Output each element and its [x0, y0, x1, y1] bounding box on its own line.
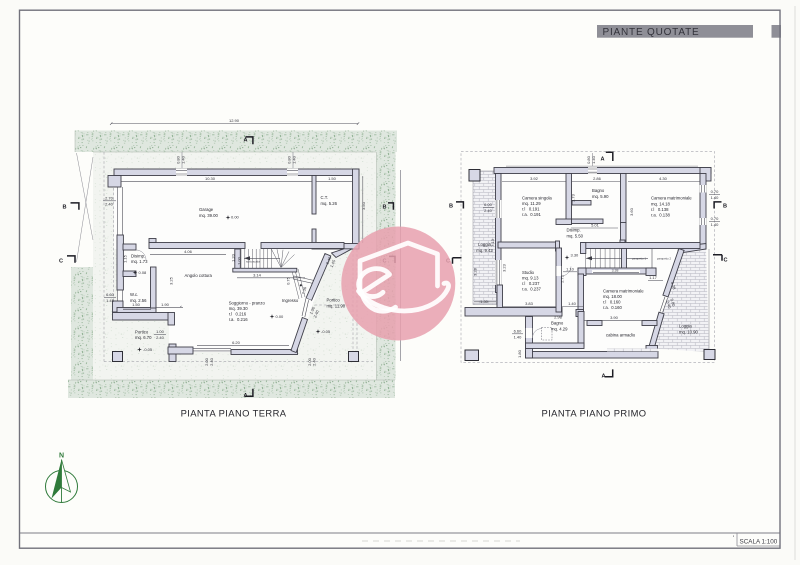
svg-text:1.00: 1.00: [237, 256, 242, 265]
svg-text:mq. 6.70: mq. 6.70: [135, 335, 152, 340]
svg-text:Studio: Studio: [522, 270, 535, 275]
svg-text:1.40: 1.40: [514, 334, 523, 339]
svg-text:2.40: 2.40: [209, 357, 214, 366]
svg-text:mq. 1.73: mq. 1.73: [131, 259, 148, 264]
svg-text:0.70: 0.70: [711, 189, 720, 194]
svg-text:1.90: 1.90: [161, 302, 170, 307]
svg-text:mq. 10.90: mq. 10.90: [679, 330, 699, 335]
svg-text:mq. 39.00: mq. 39.00: [199, 213, 219, 218]
svg-text:mq. 39.30: mq. 39.30: [229, 306, 249, 311]
svg-text:1.17: 1.17: [649, 275, 658, 280]
svg-text:10.30: 10.30: [205, 176, 216, 181]
svg-text:3.25: 3.25: [169, 276, 174, 285]
svg-text:r.a. 0.216: r.a. 0.216: [229, 317, 249, 322]
svg-text:1.40: 1.40: [711, 222, 720, 227]
svg-text:r.a. 0.191: r.a. 0.191: [522, 212, 542, 217]
svg-text:mq. 11.90: mq. 11.90: [327, 304, 346, 309]
svg-text:cabina armadio: cabina armadio: [606, 333, 636, 338]
svg-text:r.a. 0.138: r.a. 0.138: [651, 213, 671, 218]
svg-text:': ': [733, 535, 734, 542]
svg-text:Camera singola: Camera singola: [522, 196, 552, 201]
svg-text:A: A: [601, 157, 605, 163]
svg-text:sottoscala: sottoscala: [246, 260, 260, 264]
svg-text:C: C: [724, 258, 728, 264]
svg-text:parapetto 1: parapetto 1: [632, 257, 647, 261]
svg-text:Soggiorno - pranzo: Soggiorno - pranzo: [229, 301, 266, 306]
svg-text:1.45: 1.45: [106, 298, 115, 303]
svg-text:PIANTA PIANO PRIMO: PIANTA PIANO PRIMO: [542, 408, 647, 419]
svg-text:7.13: 7.13: [490, 238, 495, 247]
svg-text:6.20: 6.20: [232, 340, 241, 345]
svg-text:mq. 5.50: mq. 5.50: [567, 234, 584, 239]
svg-text:A: A: [244, 138, 248, 144]
svg-text:1.40: 1.40: [181, 155, 186, 164]
svg-text:1.50: 1.50: [328, 176, 337, 181]
svg-text:mq. 11.29: mq. 11.29: [522, 201, 541, 206]
svg-text:3.90: 3.90: [610, 315, 619, 320]
svg-text:PIANTA PIANO TERRA: PIANTA PIANO TERRA: [181, 408, 287, 419]
svg-text:0.70: 0.70: [711, 216, 720, 221]
svg-text:0.75: 0.75: [286, 276, 291, 285]
svg-text:r.l 0.138: r.l 0.138: [651, 207, 669, 212]
svg-text:mq. 14.18: mq. 14.18: [651, 202, 671, 207]
svg-text:0.00: 0.00: [231, 215, 240, 220]
svg-text:Loggia: Loggia: [679, 324, 692, 329]
svg-text:W.c.: W.c.: [130, 292, 138, 297]
svg-text:r.l 0.216: r.l 0.216: [229, 312, 247, 317]
svg-text:1.50: 1.50: [132, 302, 141, 307]
svg-text:r.l 0.191: r.l 0.191: [522, 207, 540, 212]
svg-text:2.40: 2.40: [105, 201, 114, 206]
svg-text:PIANTE QUOTATE: PIANTE QUOTATE: [603, 27, 700, 38]
svg-text:1.00: 1.00: [156, 329, 165, 334]
svg-text:3.38: 3.38: [612, 269, 619, 273]
svg-text:3.14: 3.14: [253, 272, 262, 277]
svg-text:1.30: 1.30: [480, 299, 489, 304]
svg-text:Garage: Garage: [199, 207, 214, 212]
svg-text:6.60: 6.60: [106, 292, 115, 297]
svg-text:1.40: 1.40: [292, 155, 297, 164]
svg-text:Camera matrimoniale: Camera matrimoniale: [603, 289, 644, 294]
svg-text:0.00: 0.00: [276, 314, 285, 319]
svg-text:B: B: [449, 204, 453, 210]
svg-text:C: C: [59, 259, 63, 265]
svg-text:2.73: 2.73: [571, 193, 576, 202]
svg-text:3.92: 3.92: [530, 176, 539, 181]
svg-text:3.23: 3.23: [502, 263, 507, 272]
svg-text:1.40: 1.40: [568, 301, 577, 306]
svg-text:r.a. 0.237: r.a. 0.237: [522, 287, 542, 292]
svg-text:5.01: 5.01: [591, 223, 600, 228]
svg-text:Portico: Portico: [327, 298, 341, 303]
svg-text:mq. 5.26: mq. 5.26: [321, 201, 338, 206]
svg-text:4.06: 4.06: [184, 249, 193, 254]
svg-text:Angolo cottura: Angolo cottura: [185, 273, 213, 278]
svg-text:12.90: 12.90: [229, 118, 240, 123]
svg-text:3.28: 3.28: [473, 267, 478, 276]
svg-text:1.40: 1.40: [711, 195, 720, 200]
svg-text:-0.05: -0.05: [321, 329, 331, 334]
svg-text:6.60: 6.60: [514, 329, 523, 334]
svg-text:B: B: [383, 205, 387, 211]
svg-text:B: B: [723, 204, 727, 210]
svg-text:2.40: 2.40: [312, 357, 317, 366]
svg-text:Portico: Portico: [135, 330, 149, 335]
svg-text:1.10: 1.10: [566, 267, 575, 272]
svg-text:-0.05: -0.05: [143, 347, 153, 352]
svg-text:2.70: 2.70: [105, 196, 114, 201]
svg-text:4.30: 4.30: [659, 176, 668, 181]
svg-text:mq. 9.13: mq. 9.13: [522, 276, 539, 281]
svg-text:mq. 4.29: mq. 4.29: [551, 327, 568, 332]
svg-text:1.15: 1.15: [123, 254, 128, 263]
svg-text:Bagno: Bagno: [551, 321, 564, 326]
svg-text:Ingresso: Ingresso: [282, 298, 299, 303]
svg-text:parapetto 2: parapetto 2: [657, 257, 672, 261]
svg-text:3.30: 3.30: [571, 253, 580, 258]
svg-text:Bagno: Bagno: [592, 188, 605, 193]
svg-text:6.00: 6.00: [484, 202, 493, 207]
svg-text:3.60: 3.60: [629, 207, 634, 216]
svg-text:C.T.: C.T.: [321, 195, 329, 200]
svg-text:r.l 0.237: r.l 0.237: [522, 281, 540, 286]
svg-text:mq. 9.42: mq. 9.42: [476, 248, 493, 253]
svg-text:2.40: 2.40: [484, 208, 493, 213]
svg-text:mq. 5.90: mq. 5.90: [592, 194, 609, 199]
svg-text:r.l 0.160: r.l 0.160: [603, 300, 621, 305]
svg-text:1.80: 1.80: [517, 349, 522, 358]
svg-text:SCALA 1:100: SCALA 1:100: [740, 538, 778, 545]
svg-text:B: B: [63, 205, 67, 211]
svg-text:Disimp.: Disimp.: [131, 254, 145, 259]
svg-text:0.08: 0.08: [139, 270, 148, 275]
svg-text:r.a. 0.160: r.a. 0.160: [603, 305, 623, 310]
svg-text:Camera matrimoniale: Camera matrimoniale: [651, 196, 692, 201]
svg-text:2.40: 2.40: [156, 335, 165, 340]
svg-text:3.83: 3.83: [525, 301, 534, 306]
svg-text:1.40: 1.40: [591, 155, 596, 164]
svg-text:2.72: 2.72: [560, 274, 565, 283]
svg-text:2.86: 2.86: [593, 176, 602, 181]
svg-text:N: N: [59, 453, 64, 460]
svg-text:3.50: 3.50: [361, 201, 366, 210]
svg-text:1.20: 1.20: [231, 253, 236, 262]
svg-text:2.98: 2.98: [554, 315, 563, 320]
svg-text:mq. 18.00: mq. 18.00: [603, 294, 623, 299]
